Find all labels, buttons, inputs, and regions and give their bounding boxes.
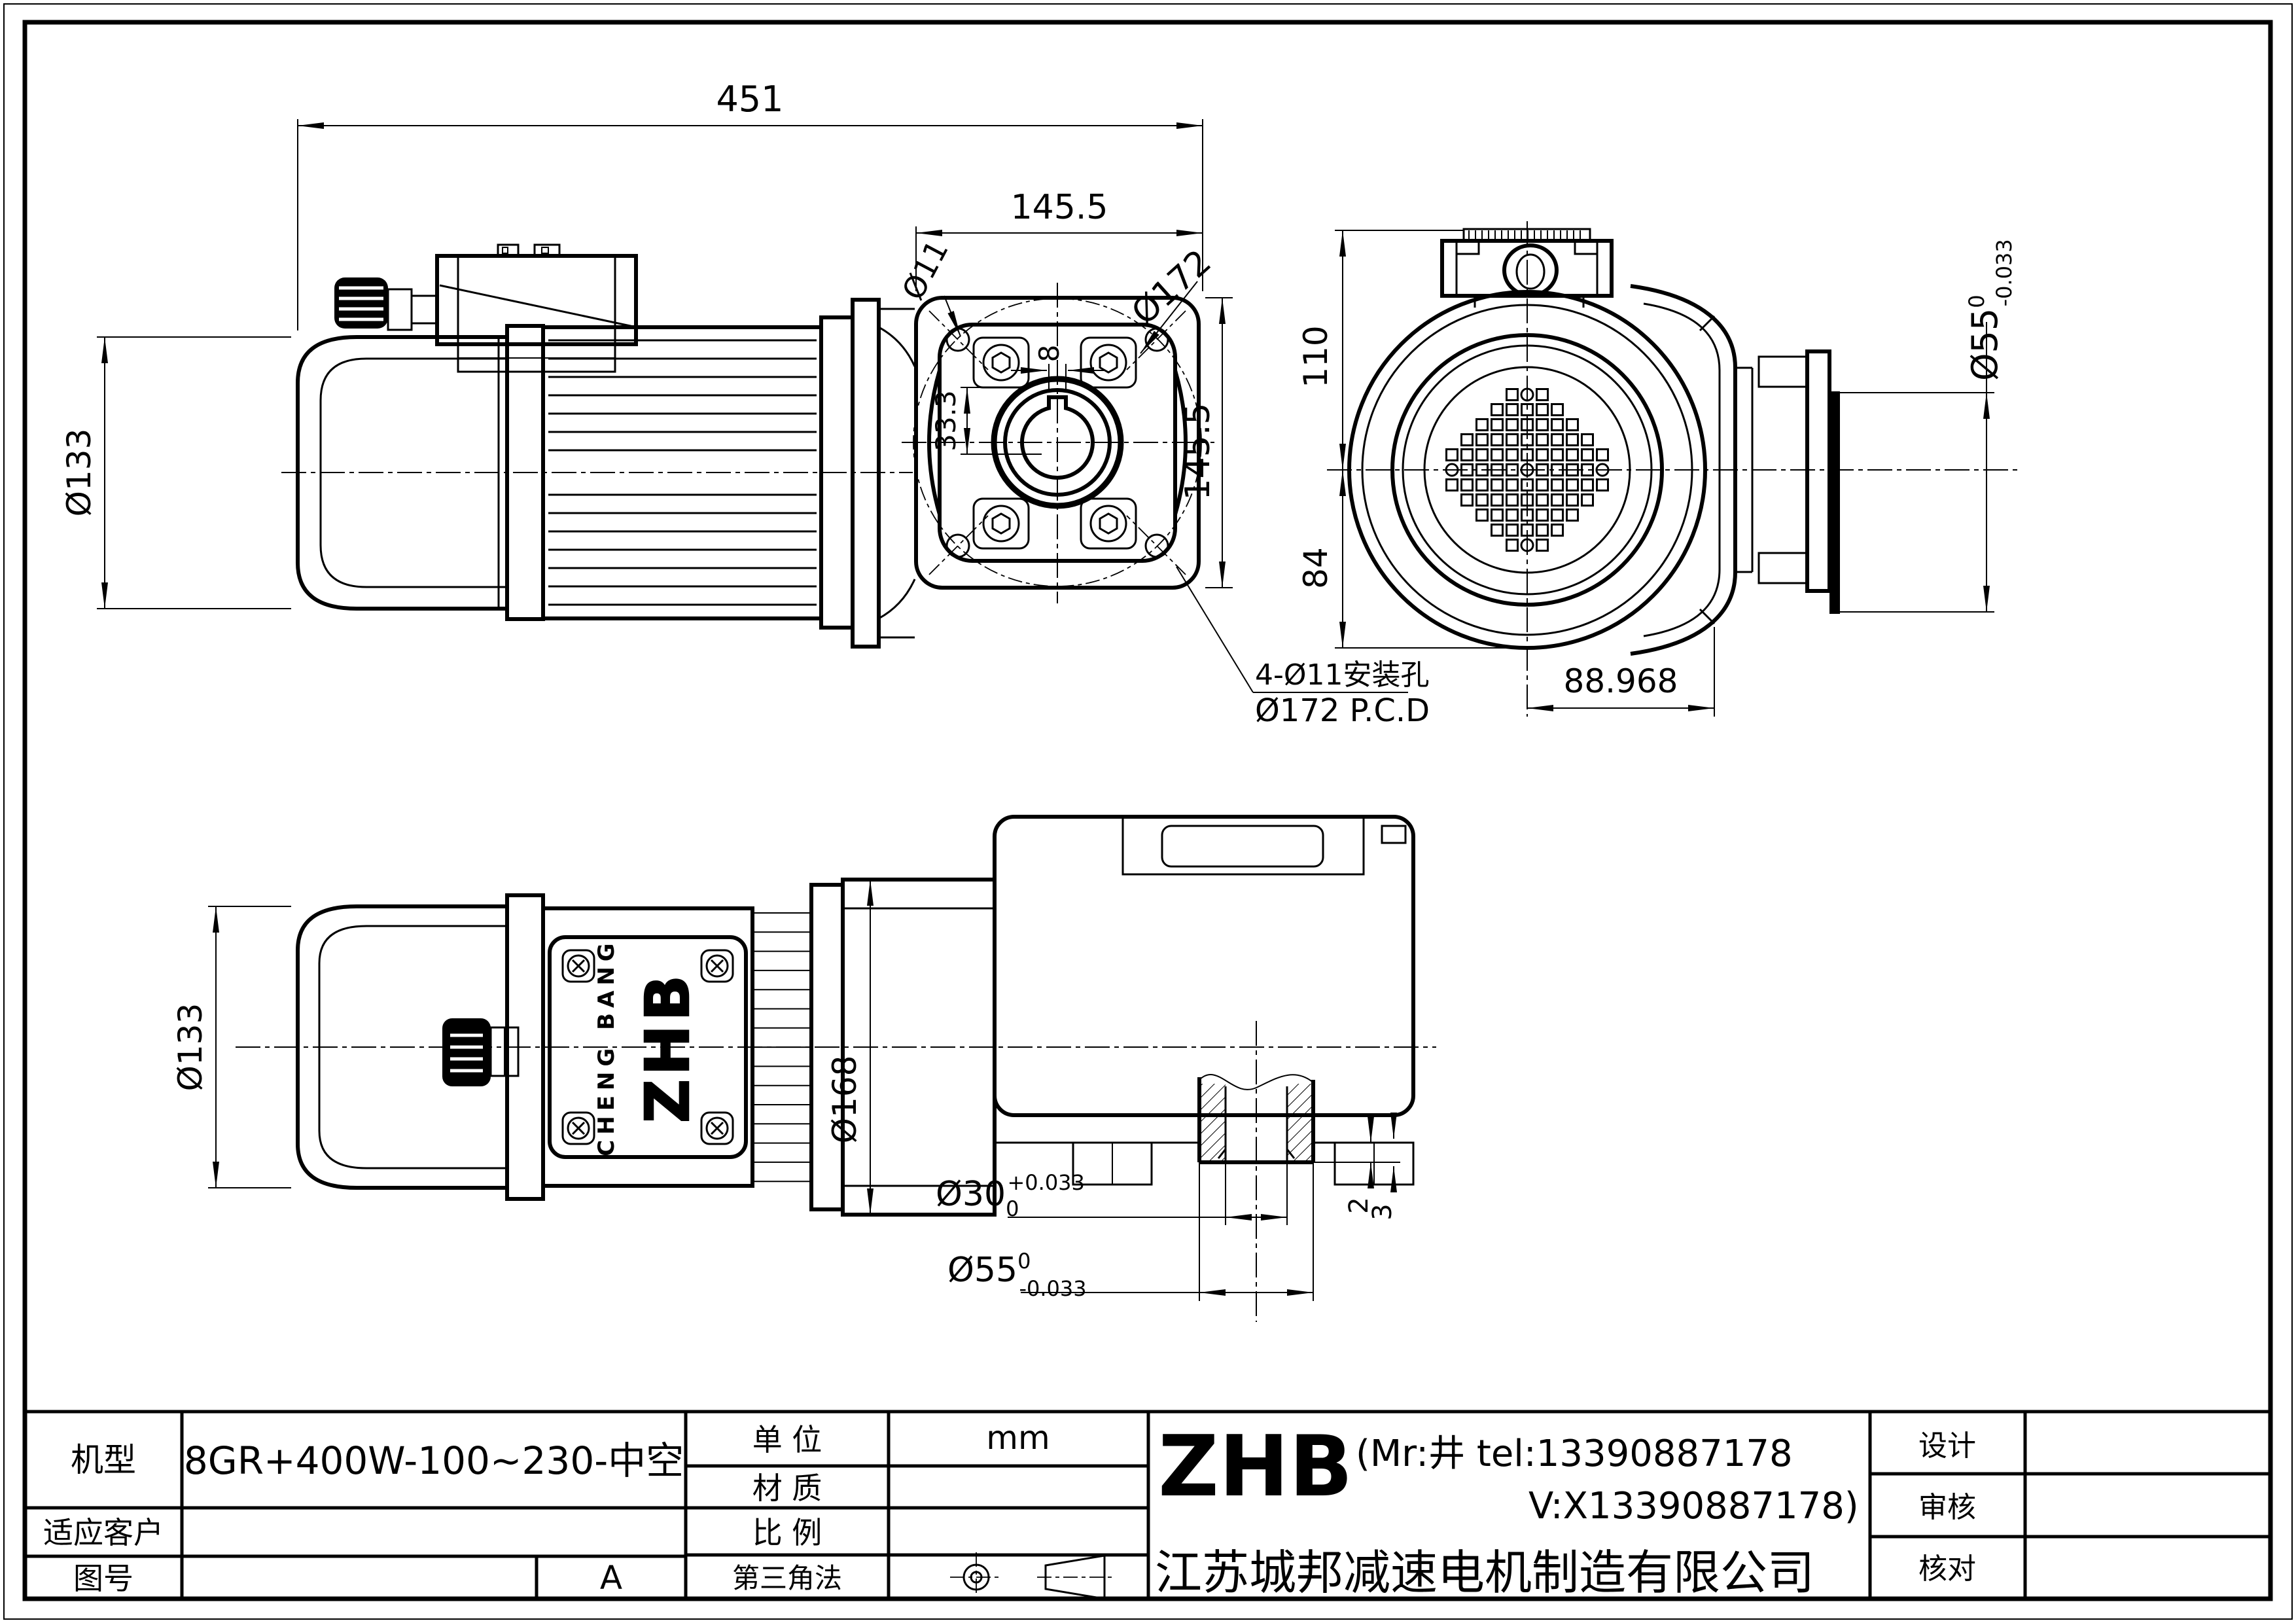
- dim-84: 84: [1297, 470, 1527, 648]
- cable-gland: [334, 277, 437, 330]
- sheet-frame: [4, 4, 2292, 1619]
- dim-shaft-rear: Ø550-0.033: [1840, 239, 2017, 612]
- dim-steps: 2 3: [1313, 1119, 1400, 1221]
- dim-145-top-text: 145.5: [1011, 188, 1108, 227]
- projection-label: 第三角法: [732, 1562, 842, 1594]
- dim-key-depth: 33.3: [930, 387, 1042, 454]
- dim-84-text: 84: [1297, 547, 1335, 589]
- contact-line1: (Mr:井 tel:13390887178: [1356, 1433, 1793, 1475]
- material-label: 材 质: [752, 1471, 822, 1506]
- revision-value: A: [600, 1559, 622, 1597]
- dim-133-side-text: Ø133: [60, 429, 98, 517]
- drawing-no-label: 图号: [73, 1561, 133, 1596]
- dim-133-plan-text: Ø133: [171, 1003, 209, 1092]
- rear-view: 110 84 Ø550-0.033 88.968: [1297, 221, 2022, 717]
- dim-333-text: 33.3: [930, 390, 962, 452]
- plan-view: Ø133 ZHB CHENG BANG: [171, 817, 1436, 1322]
- company-name: 江苏城邦减速电机制造有限公司: [1155, 1545, 1814, 1600]
- unit-label: 单 位: [752, 1422, 822, 1457]
- callout-hole: Ø11: [895, 234, 961, 336]
- brand-logo: ZHB: [1158, 1418, 1353, 1516]
- check-label: 核对: [1918, 1552, 1976, 1586]
- dim-110-text: 110: [1297, 325, 1335, 387]
- design-label: 设计: [1918, 1429, 1976, 1463]
- terminal-box: [437, 245, 636, 372]
- dim-172-text: Ø172: [1124, 242, 1218, 332]
- unit-value: mm: [986, 1419, 1050, 1457]
- dim-8-text: 8: [1033, 345, 1065, 363]
- scale-label: 比 例: [752, 1515, 822, 1550]
- review-label: 审核: [1918, 1491, 1976, 1524]
- hollow-shaft-hub: [1829, 391, 1840, 614]
- model-value: 8GR+400W-100~230-中空: [184, 1438, 684, 1483]
- dim-pcd: Ø172: [1124, 242, 1218, 353]
- dim-square-height: 145.5: [1178, 298, 1233, 588]
- drawing-sheet: 451 145.5 Ø133 Ø11: [0, 0, 2296, 1623]
- dim-o11-text: Ø11: [895, 234, 955, 306]
- customer-label: 适应客户: [43, 1515, 164, 1550]
- third-angle-projection-icon: [950, 1552, 1114, 1602]
- motor-fins-plan: [754, 913, 811, 1181]
- dim-168-text: Ø168: [826, 1056, 864, 1144]
- dim-3-text: 3: [1368, 1204, 1398, 1220]
- contact-line2: V:X13390887178): [1528, 1485, 1859, 1527]
- dim-o30-text: Ø300+0.033: [936, 1170, 1085, 1221]
- dim-o55-plan-text: Ø550-0.033: [947, 1249, 1087, 1301]
- dim-451-text: 451: [716, 79, 783, 120]
- dim-motor-dia-plan: Ø133: [171, 906, 291, 1188]
- model-label: 机型: [71, 1441, 136, 1479]
- dim-1455-right-text: 145.5: [1178, 403, 1218, 501]
- nameplate-brand-text: ZHB: [633, 971, 703, 1123]
- dim-110: 110: [1297, 230, 1464, 470]
- note-holes-text: 4-Ø11安装孔: [1255, 658, 1430, 692]
- nameplate-maker-text: CHENG BANG: [593, 938, 620, 1156]
- dim-o55-rear-text: Ø550-0.033: [1964, 239, 2017, 381]
- dim-88968-text: 88.968: [1564, 662, 1678, 700]
- note-pcd-text: Ø172 P.C.D: [1255, 692, 1430, 729]
- dim-motor-dia-side: Ø133: [60, 337, 291, 609]
- title-block: 机型 8GR+400W-100~230-中空 适应客户 图号 A 单 位 mm …: [25, 1412, 2270, 1602]
